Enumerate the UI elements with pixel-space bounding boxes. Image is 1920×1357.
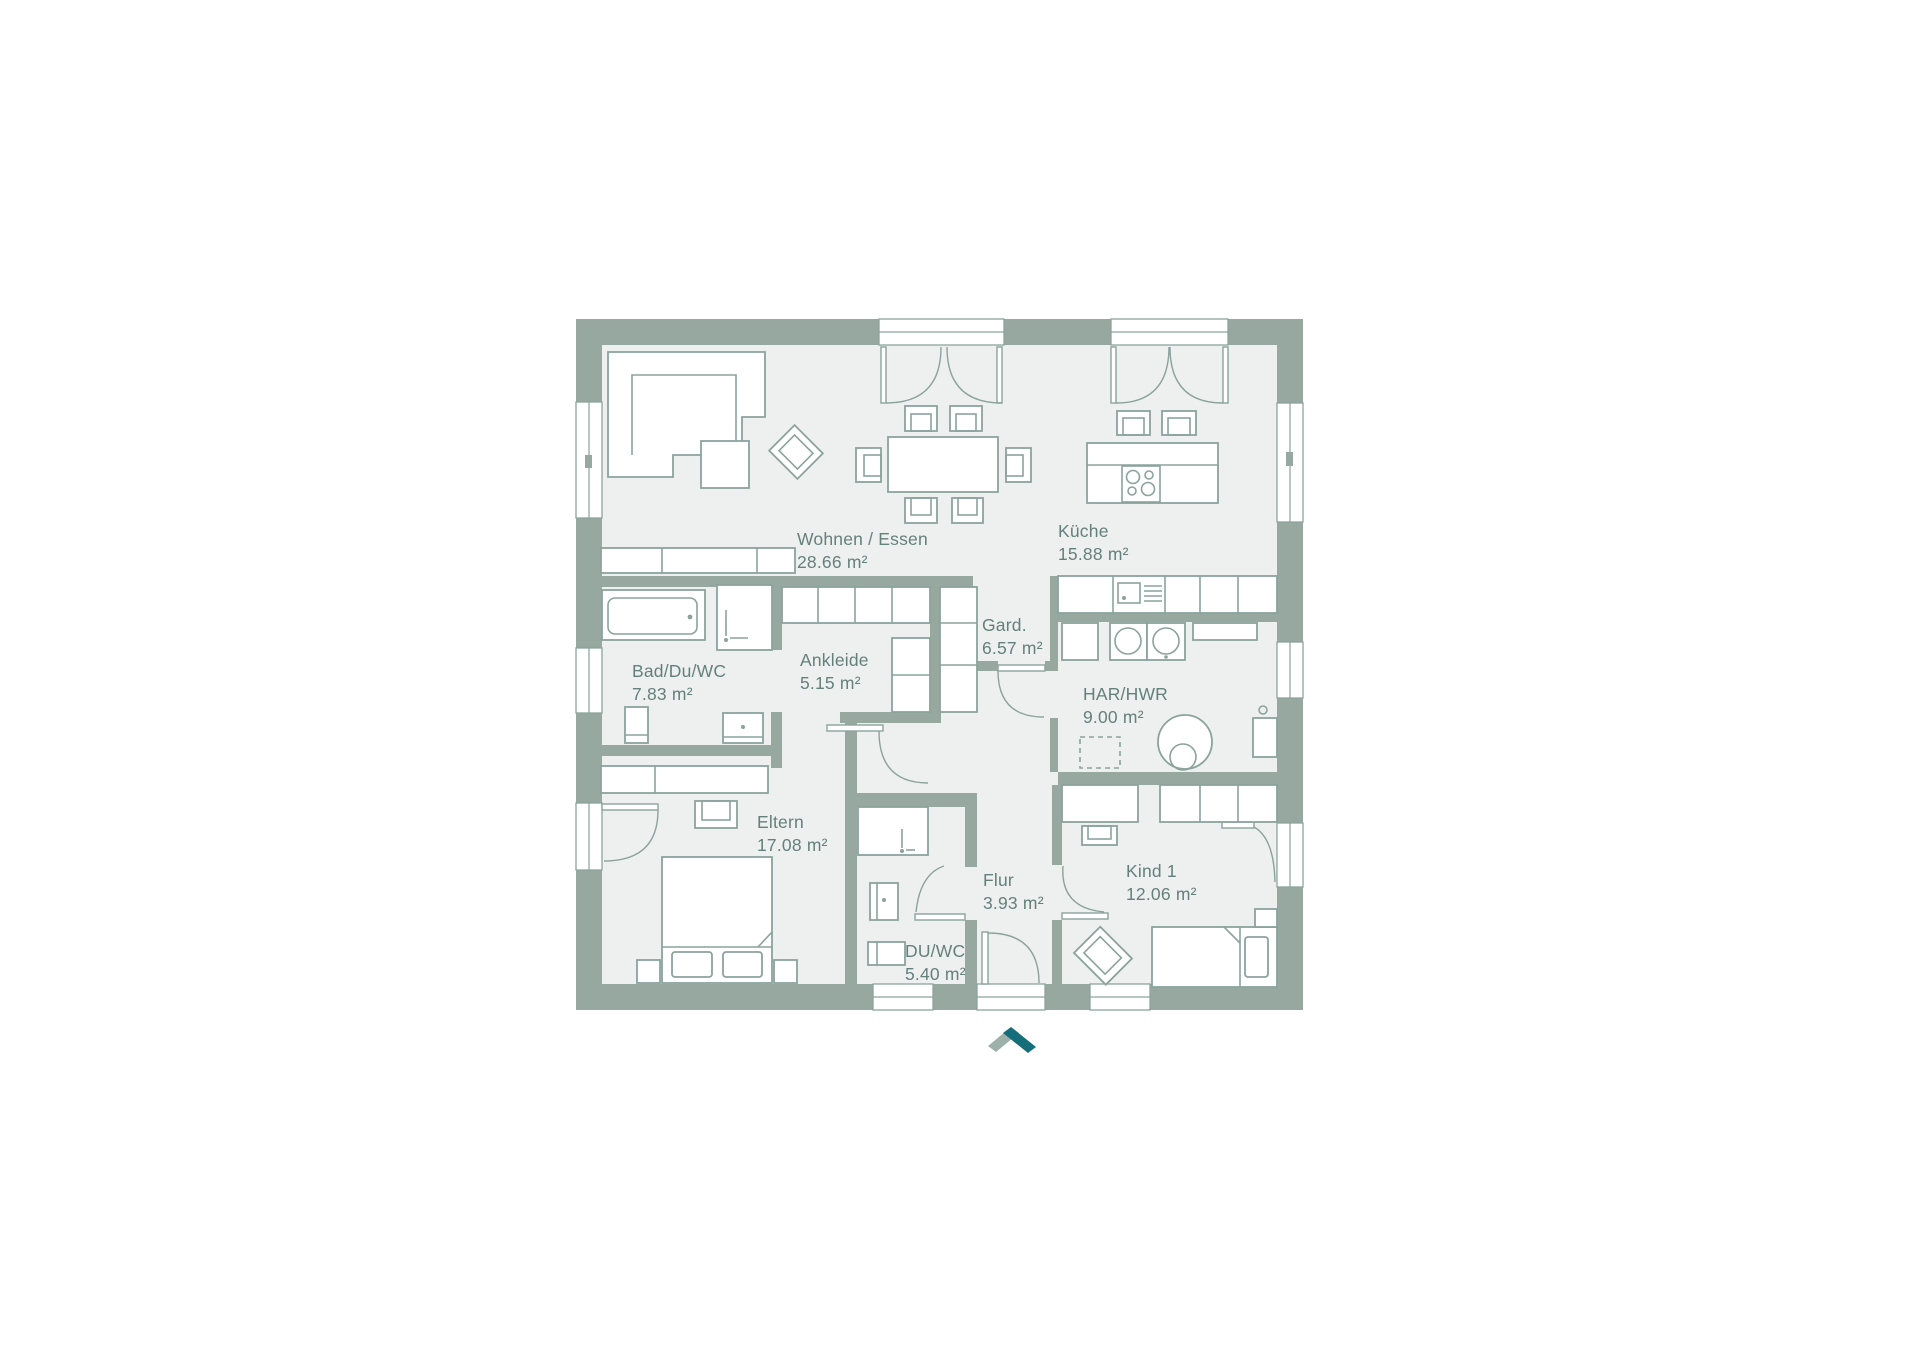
pillow	[672, 952, 712, 977]
nightstand	[637, 960, 660, 983]
pillow	[1245, 937, 1268, 977]
kitchen-counter	[1058, 576, 1277, 613]
bar-stool	[1117, 411, 1150, 435]
toilet	[625, 707, 648, 743]
water-heater	[1158, 715, 1212, 769]
toilet	[868, 942, 905, 965]
appliance	[1062, 623, 1098, 660]
floor-plan-page: Wohnen / Essen 28.66 m² Küche 15.88 m² B…	[0, 0, 1920, 1357]
wardrobe-row	[782, 587, 930, 623]
utility-sink	[1253, 718, 1277, 757]
nightstand	[774, 960, 797, 983]
coffee-table	[701, 441, 749, 488]
shelf	[1193, 623, 1257, 640]
bar-stool	[1162, 411, 1196, 435]
bedside-shelf	[1255, 909, 1277, 927]
pillow	[723, 952, 762, 977]
sideboard	[601, 548, 795, 573]
garderobe-cabinet	[940, 587, 977, 712]
shower	[858, 807, 928, 855]
wardrobe	[1160, 785, 1277, 822]
wardrobe	[601, 766, 768, 793]
dining-table	[888, 437, 998, 492]
floor-plan-drawing	[0, 0, 1920, 1357]
builder-roof-logo	[988, 1027, 1036, 1053]
desk	[1062, 785, 1138, 822]
